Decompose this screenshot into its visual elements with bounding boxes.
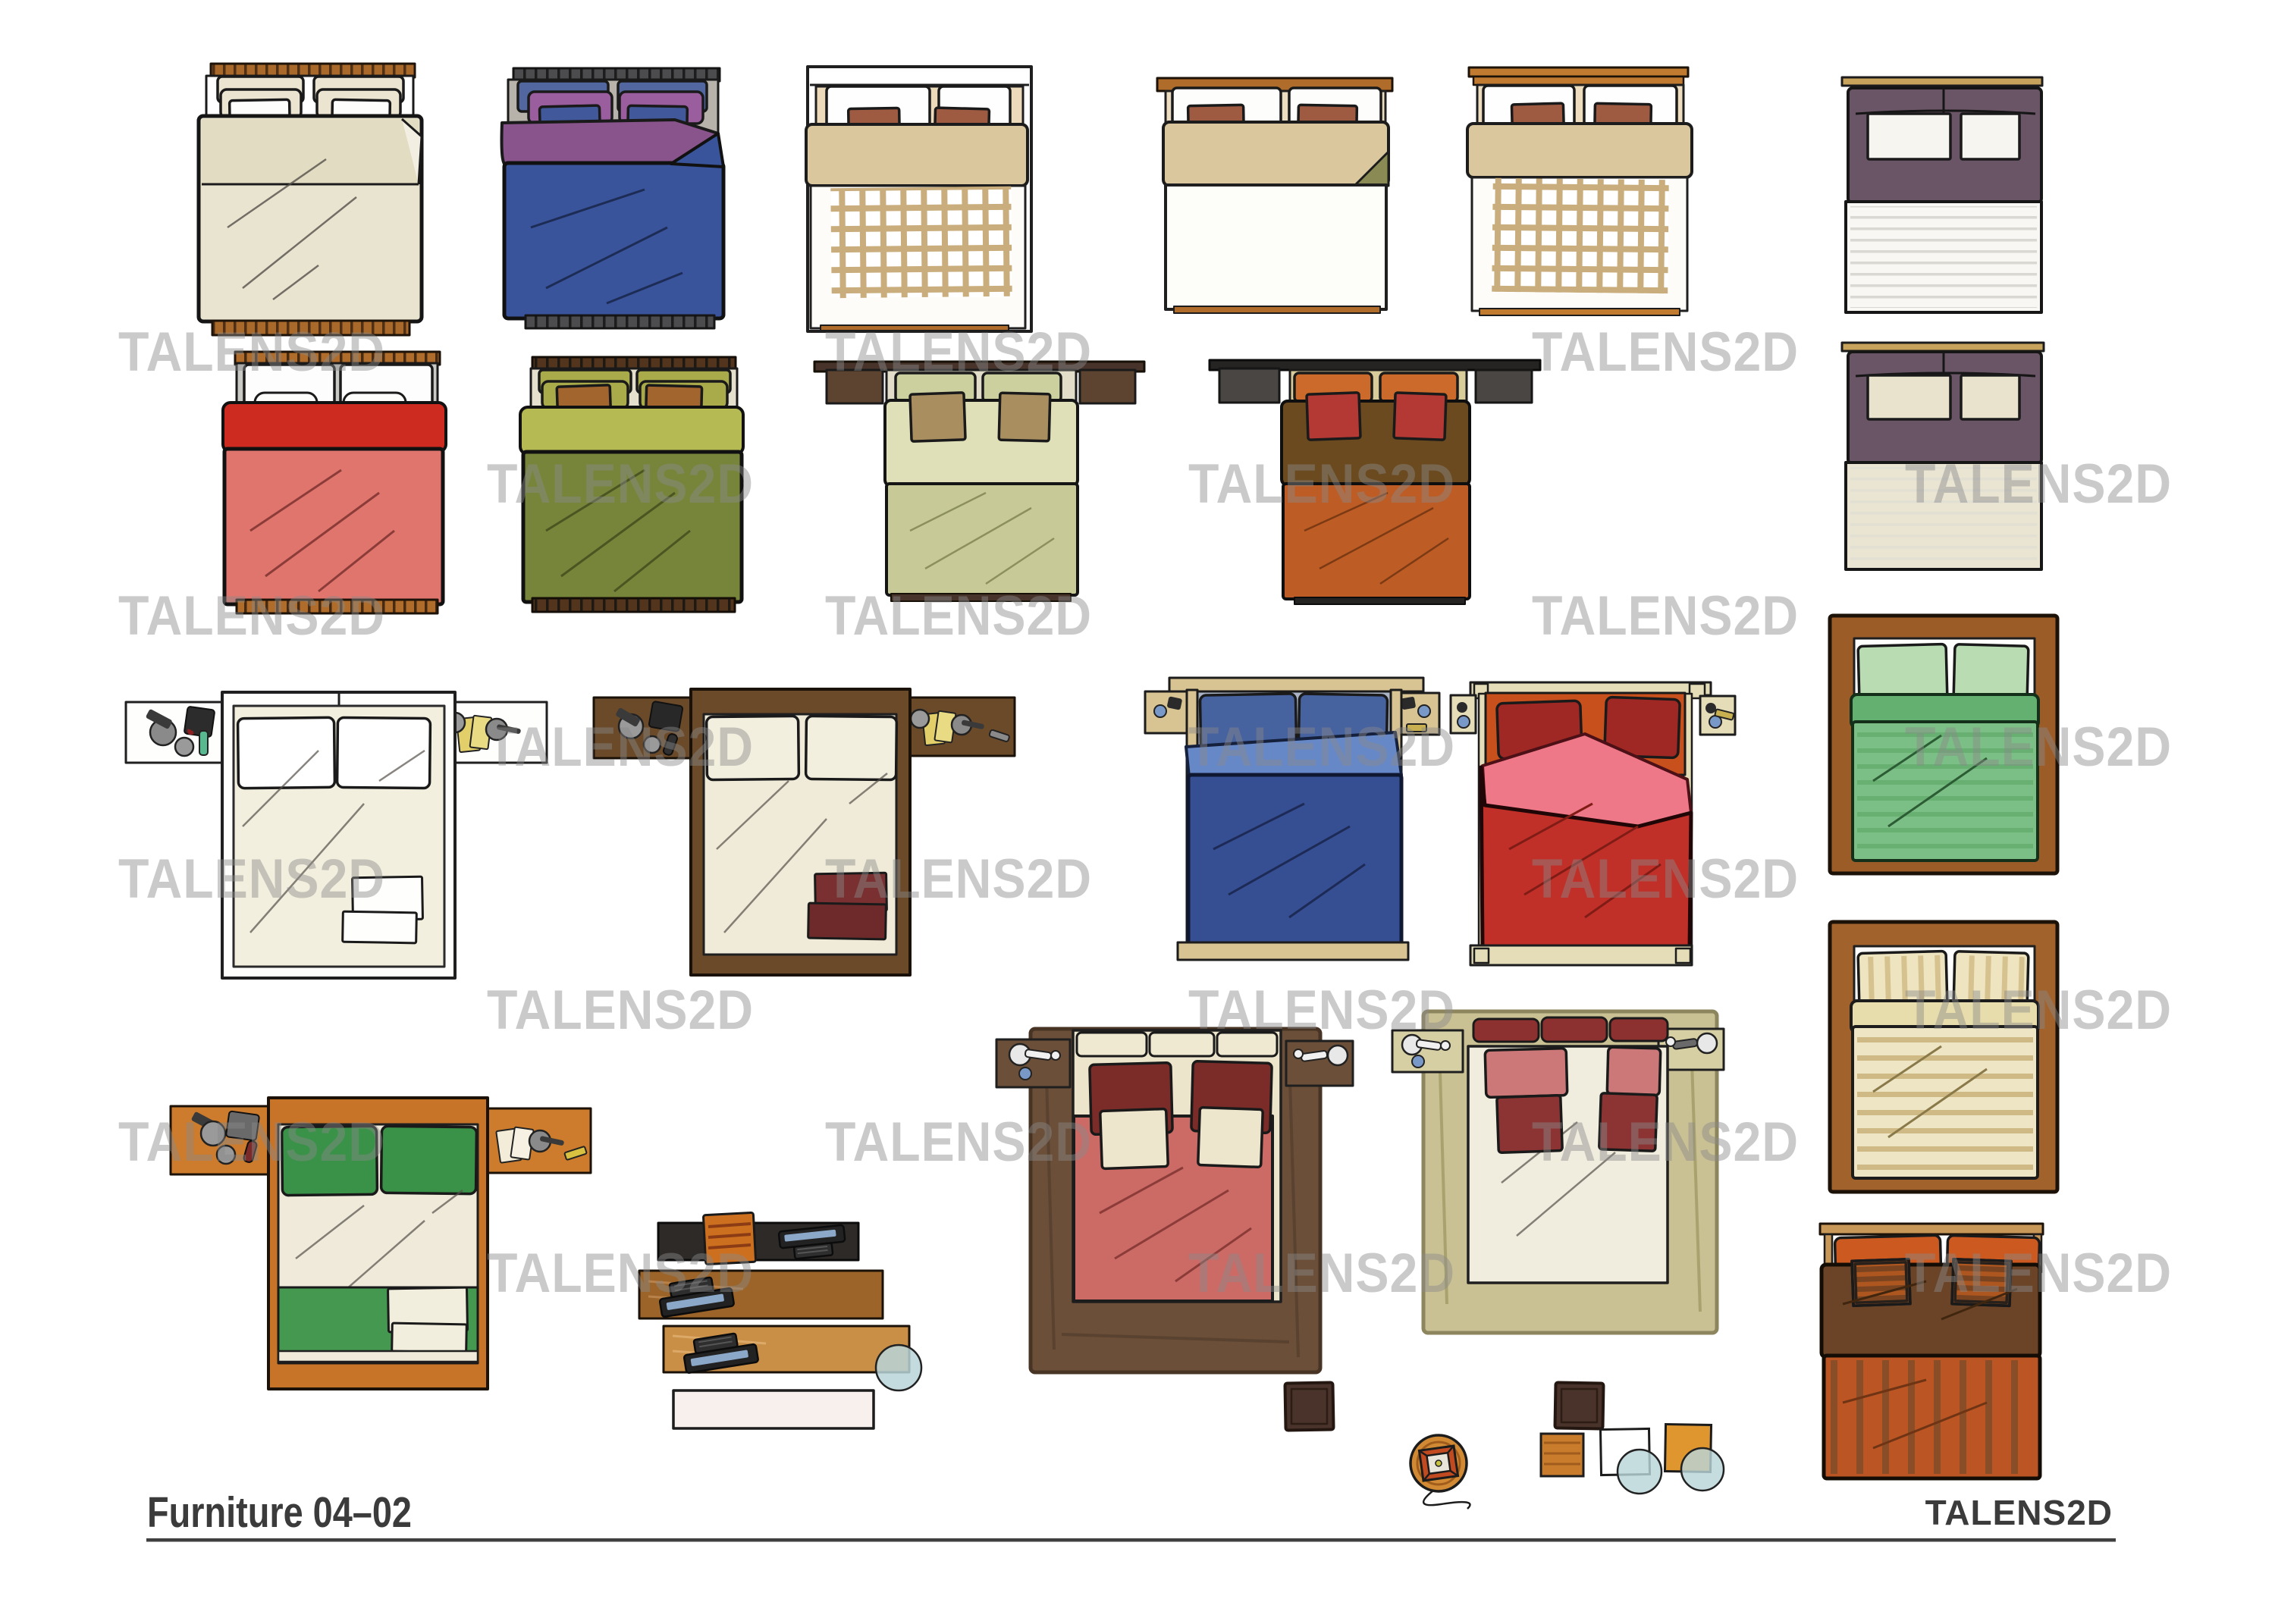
svg-text:TALENS2D: TALENS2D [825, 1111, 1092, 1173]
svg-text:TALENS2D: TALENS2D [1188, 1243, 1455, 1304]
svg-text:TALENS2D: TALENS2D [825, 585, 1092, 647]
svg-text:TALENS2D: TALENS2D [825, 321, 1092, 383]
svg-text:TALENS2D: TALENS2D [1532, 321, 1799, 383]
svg-text:Furniture 04–02: Furniture 04–02 [147, 1488, 412, 1537]
svg-text:TALENS2D: TALENS2D [1188, 980, 1455, 1041]
svg-text:TALENS2D: TALENS2D [487, 1243, 754, 1304]
svg-text:TALENS2D: TALENS2D [487, 716, 754, 778]
svg-text:TALENS2D: TALENS2D [118, 1111, 385, 1173]
svg-text:TALENS2D: TALENS2D [118, 848, 385, 910]
svg-text:TALENS2D: TALENS2D [1532, 848, 1799, 910]
svg-text:TALENS2D: TALENS2D [487, 453, 754, 515]
svg-text:TALENS2D: TALENS2D [1532, 1111, 1799, 1173]
svg-text:TALENS2D: TALENS2D [1905, 716, 2172, 778]
svg-text:TALENS2D: TALENS2D [825, 848, 1092, 910]
svg-text:TALENS2D: TALENS2D [1188, 716, 1455, 778]
svg-text:TALENS2D: TALENS2D [1905, 453, 2172, 515]
svg-text:TALENS2D: TALENS2D [118, 585, 385, 647]
svg-text:TALENS2D: TALENS2D [118, 321, 385, 383]
svg-text:TALENS2D: TALENS2D [1905, 1243, 2172, 1304]
svg-text:TALENS2D: TALENS2D [487, 980, 754, 1041]
svg-text:TALENS2D: TALENS2D [1925, 1493, 2113, 1532]
svg-text:TALENS2D: TALENS2D [1188, 453, 1455, 515]
svg-text:TALENS2D: TALENS2D [1905, 980, 2172, 1041]
svg-text:TALENS2D: TALENS2D [1532, 585, 1799, 647]
